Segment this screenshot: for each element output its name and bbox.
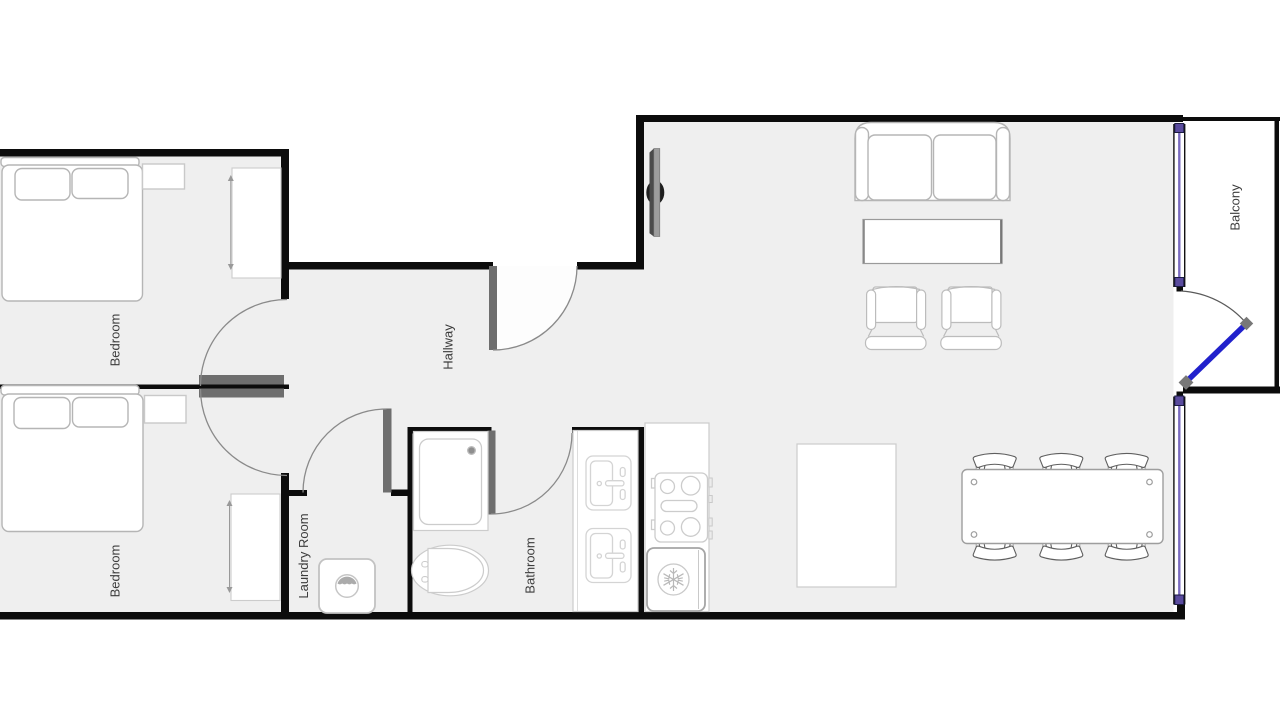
svg-text:Laundry Room: Laundry Room <box>296 513 311 598</box>
svg-text:Bathroom: Bathroom <box>523 537 538 593</box>
svg-text:Balcony: Balcony <box>1228 184 1243 231</box>
svg-text:Bedroom: Bedroom <box>108 545 123 598</box>
svg-text:Hallway: Hallway <box>441 324 456 370</box>
svg-text:Bedroom: Bedroom <box>108 314 123 367</box>
